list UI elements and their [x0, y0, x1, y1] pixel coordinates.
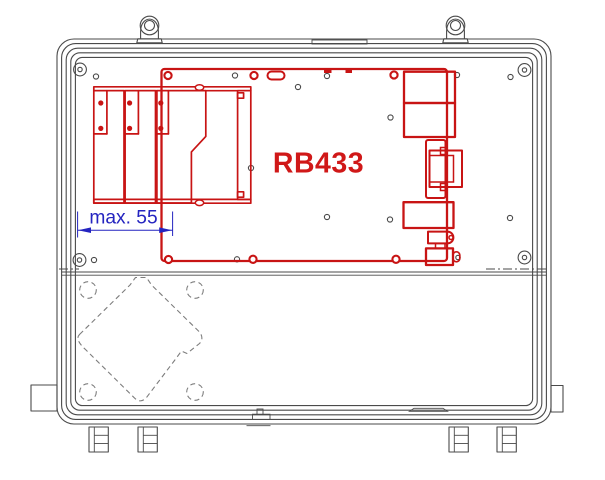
lug-eyelet-inner: [145, 21, 155, 31]
cable-glands: [89, 427, 516, 452]
minipci-bracket-assembly: [94, 85, 251, 206]
bottom-latch-detail: [247, 409, 271, 426]
serial-db9-connector: [426, 140, 462, 198]
power-connector-block: [404, 202, 460, 265]
enclosure-outline: [57, 39, 551, 424]
cable-gland: [138, 427, 157, 452]
arrowhead-right: [159, 227, 172, 233]
cable-gland: [497, 427, 516, 452]
board-edge-slot: [268, 72, 285, 80]
antenna-cutout-dashed: [78, 278, 203, 401]
board-edge-mark: [324, 70, 332, 73]
antenna-connector: [426, 248, 453, 265]
side-tab-right: [551, 386, 563, 413]
board-edge-mark: [346, 70, 353, 73]
cable-gland: [449, 427, 468, 452]
dimension-label: max. 55: [89, 208, 157, 229]
cad-drawing-enclosure-with-rb433: RB433 max. 55: [0, 0, 605, 480]
board-label: RB433: [273, 148, 364, 180]
card-guide-rail: [238, 91, 251, 200]
card-slot-1: [94, 91, 124, 203]
technical-drawing-canvas: RB433 max. 55: [0, 0, 605, 480]
card-slot-3: [157, 91, 206, 203]
lid-seam-line: [59, 269, 548, 275]
lug-eyelet-inner: [451, 21, 461, 31]
cable-gland: [89, 427, 108, 452]
dimension-annotation: max. 55: [78, 208, 173, 238]
side-tab-left: [31, 385, 57, 411]
card-slot-2: [125, 91, 155, 203]
mounting-lug-left: [137, 16, 162, 43]
mounting-lug-right: [443, 16, 468, 43]
